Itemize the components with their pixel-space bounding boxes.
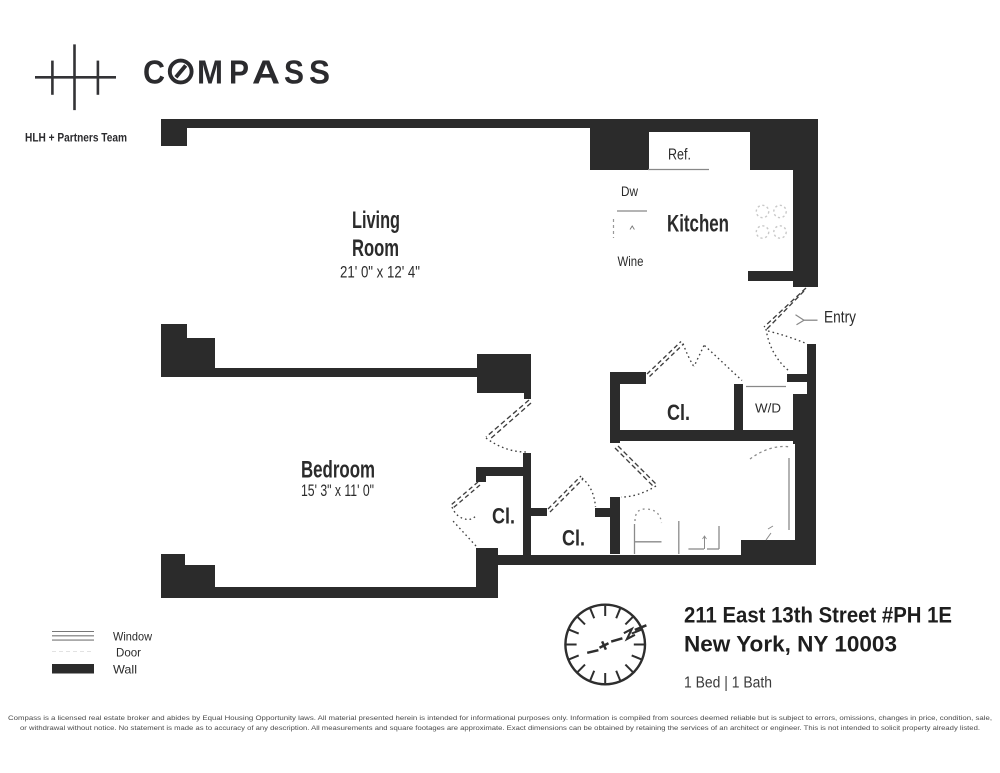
svg-text:Cl.: Cl. [492, 504, 515, 529]
svg-text:or withdrawal without notice.: or withdrawal without notice. No stateme… [20, 725, 980, 732]
svg-text:HLH + Partners Team: HLH + Partners Team [25, 133, 127, 145]
svg-text:Wine: Wine [618, 253, 644, 269]
svg-text:Compass is a licensed real est: Compass is a licensed real estate broker… [8, 715, 992, 722]
svg-text:Living: Living [352, 207, 400, 234]
svg-text:C: C [143, 54, 165, 91]
svg-text:211 East 13th Street #PH 1E: 211 East 13th Street #PH 1E [684, 603, 952, 628]
svg-text:W/D: W/D [755, 402, 781, 416]
svg-text:Door: Door [116, 646, 141, 660]
svg-text:A: A [252, 54, 280, 91]
svg-text:S: S [309, 54, 330, 91]
svg-text:M: M [197, 54, 223, 91]
svg-text:Ref.: Ref. [668, 147, 691, 164]
svg-text:P: P [229, 54, 249, 91]
svg-text:Cl.: Cl. [667, 400, 690, 425]
svg-text:Cl.: Cl. [562, 526, 585, 551]
svg-text:S: S [284, 54, 304, 91]
svg-text:Entry: Entry [824, 309, 857, 327]
svg-text:21' 0" x 12' 4": 21' 0" x 12' 4" [340, 263, 420, 282]
svg-text:Dw: Dw [621, 183, 639, 199]
svg-text:Room: Room [352, 235, 399, 262]
svg-text:Kitchen: Kitchen [667, 211, 729, 238]
svg-text:1 Bed | 1 Bath: 1 Bed | 1 Bath [684, 675, 772, 692]
svg-text:Bedroom: Bedroom [301, 457, 375, 484]
svg-text:15' 3" x 11' 0": 15' 3" x 11' 0" [301, 481, 374, 500]
svg-text:New York, NY 10003: New York, NY 10003 [684, 632, 897, 657]
svg-text:Wall: Wall [113, 663, 137, 677]
svg-text:Window: Window [113, 630, 152, 644]
